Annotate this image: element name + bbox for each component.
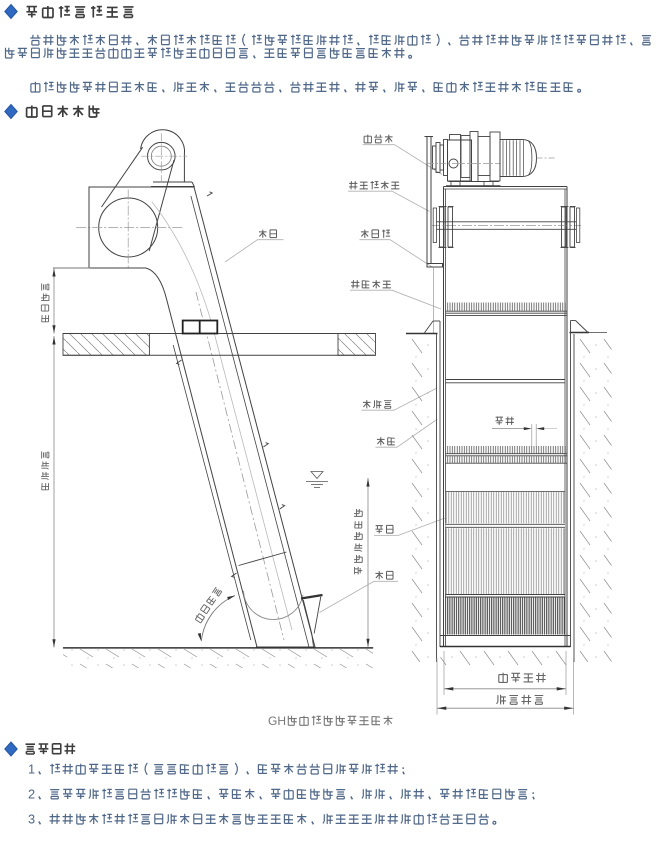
svg-text:1: 1	[28, 762, 35, 777]
svg-text:GH: GH	[268, 714, 286, 728]
svg-text:2: 2	[28, 787, 35, 802]
svg-text:3: 3	[28, 812, 35, 827]
